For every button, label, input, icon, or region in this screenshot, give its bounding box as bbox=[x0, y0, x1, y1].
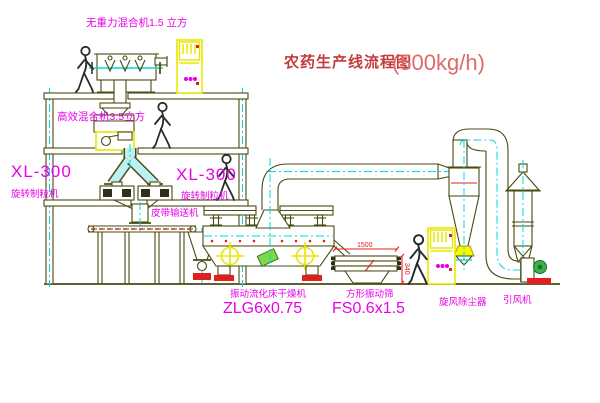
flow-diagram-canvas: 无重力混合机1.5 立方 农药生产线流程图 (500kg/h) 高效混合机3.5… bbox=[0, 0, 600, 403]
granulator-right-model: XL-300 bbox=[176, 165, 237, 184]
belt-conveyor-label: 皮带输送机 bbox=[151, 207, 199, 219]
granulator-left-model: XL-300 bbox=[11, 162, 72, 181]
dryer-model-label: ZLG6x0.75 bbox=[223, 300, 302, 317]
control-cabinet-bottom bbox=[428, 228, 455, 284]
belt-conveyor bbox=[88, 226, 196, 284]
dryer-name-label: 振动流化床干燥机 bbox=[230, 288, 307, 300]
diagram-title-capacity: (500kg/h) bbox=[392, 50, 485, 75]
person-figure-1 bbox=[76, 47, 93, 92]
sieve-width-dimension: 1500 bbox=[357, 242, 373, 249]
vibrating-sieve bbox=[331, 247, 404, 286]
cyclone-label: 旋风除尘器 bbox=[439, 296, 487, 308]
sieve-height-dimension: 340 bbox=[403, 263, 410, 275]
person-figure-2 bbox=[153, 103, 170, 148]
diagram-svg: 无重力混合机1.5 立方 农药生产线流程图 (500kg/h) 高效混合机3.5… bbox=[0, 0, 600, 403]
granulator-left-name: 旋转制粒机 bbox=[11, 188, 59, 200]
induced-draft-fan bbox=[521, 258, 551, 284]
mixer-top-label: 无重力混合机1.5 立方 bbox=[86, 16, 188, 29]
granulator-right bbox=[138, 182, 172, 200]
sieve-model-label: FS0.6x1.5 bbox=[332, 300, 405, 317]
control-cabinet-top bbox=[177, 40, 202, 93]
sieve-name-label: 方形振动筛 bbox=[346, 288, 394, 300]
person-figure-4 bbox=[408, 235, 426, 284]
mixer-mid-label: 高效混合机3.5立方 bbox=[57, 110, 145, 123]
fan-label: 引风机 bbox=[503, 294, 532, 306]
granulator-right-name: 旋转制粒机 bbox=[181, 190, 229, 202]
